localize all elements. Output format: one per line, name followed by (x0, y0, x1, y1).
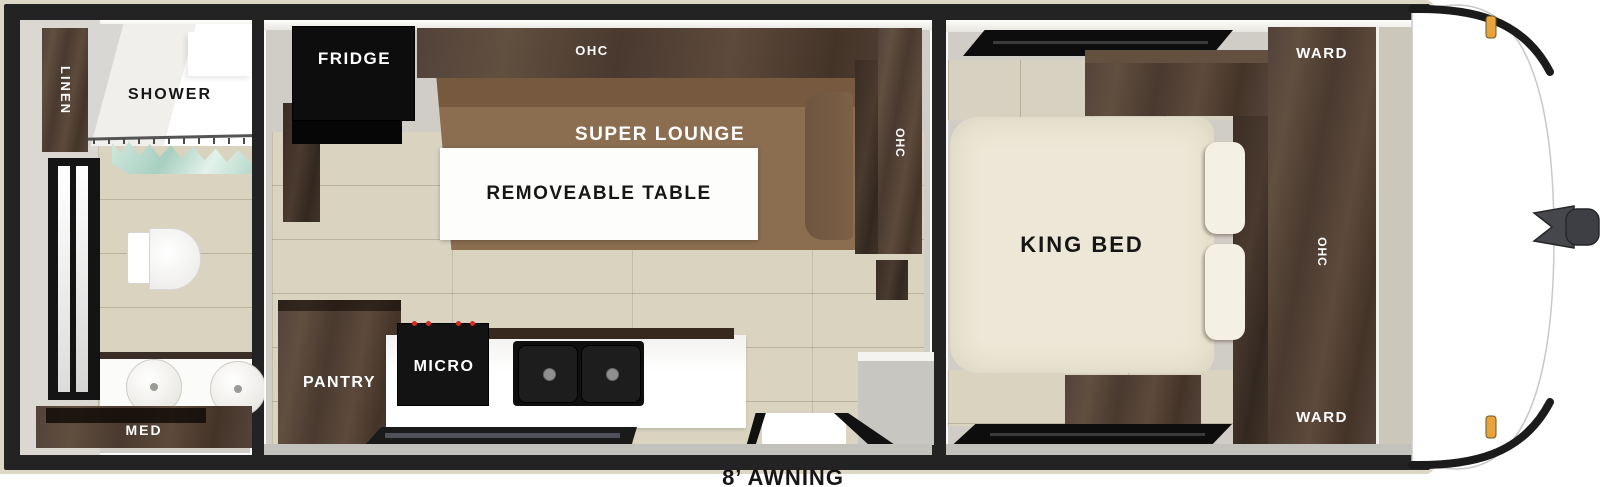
shower-stall: SHOWER (88, 24, 252, 146)
section-kitchen-living: FRIDGE OHC SUPER LOUNGE OHC REMOVEABLE T… (264, 20, 932, 455)
fridge: FRIDGE (292, 26, 415, 121)
ward-front-label: WARD (1268, 45, 1376, 62)
shower-bench (188, 32, 252, 76)
floor-mat-stripe (385, 433, 620, 438)
sink-drain (606, 368, 619, 381)
nightstand-top-face (1085, 50, 1269, 63)
window-frame-line (990, 433, 1205, 436)
counter-back-edge (488, 328, 734, 339)
pillow (1205, 244, 1245, 340)
cap-body (1412, 5, 1554, 469)
shower-label: SHOWER (110, 86, 230, 104)
king-bed-label: KING BED (1020, 232, 1144, 258)
linen-cabinet: LINEN (42, 28, 88, 152)
pantry-top (278, 300, 401, 311)
ohc-top-cabinet: OHC (417, 28, 922, 78)
marker-light-icon (1486, 16, 1496, 38)
micro-label: MICRO (398, 358, 490, 376)
entry-wall-top (858, 352, 934, 361)
section-bedroom: KING BED WARD OHC WARD (946, 20, 1412, 455)
marker-light-icon (1486, 416, 1496, 438)
burner-knob (412, 321, 417, 326)
bedroom-window-bottom (950, 424, 1232, 446)
sink-drain (234, 385, 242, 393)
micro-range: MICRO (397, 323, 489, 406)
entry-door-opening (762, 413, 846, 447)
burner-knob (426, 321, 431, 326)
front-cap (1408, 0, 1600, 487)
corner-cabinet (876, 260, 908, 300)
vanity-backsplash (100, 352, 252, 359)
ohc-side-label: OHC (878, 123, 922, 163)
sink-basin (518, 345, 578, 403)
window-pane (76, 166, 88, 392)
sink-basin (581, 345, 641, 403)
removeable-table: REMOVEABLE TABLE (440, 148, 758, 240)
nightstand-bottom (1065, 375, 1201, 429)
burner-knob (470, 321, 475, 326)
sink-drain (543, 368, 556, 381)
shower-curtain-rings (80, 138, 252, 144)
pillow (1205, 142, 1245, 234)
lounge-armrest (805, 92, 853, 240)
pantry-cabinet: PANTRY (278, 300, 401, 447)
bathroom-window (48, 158, 100, 400)
ohc-side-cabinet: OHC (878, 28, 922, 254)
kitchen-floor-mat (365, 427, 637, 445)
ohc-top-label: OHC (552, 43, 632, 58)
linen-label: LINEN (41, 83, 90, 98)
med-cabinet: MED (36, 406, 252, 448)
removeable-table-label: REMOVEABLE TABLE (486, 183, 711, 205)
living-bottom-band (264, 444, 932, 455)
ward-rear-label: WARD (1268, 409, 1376, 426)
bedroom-bottom-band (946, 444, 1412, 455)
king-bed: KING BED (950, 117, 1214, 373)
window-pane (58, 166, 70, 392)
fridge-label: FRIDGE (293, 49, 416, 69)
wall-highlight (1376, 27, 1379, 451)
sink-drain (150, 383, 158, 391)
super-lounge-label: SUPER LOUNGE (520, 124, 800, 146)
section-bathroom: SHOWER LINEN MED (20, 20, 252, 455)
kitchen-sink (513, 341, 644, 406)
fridge-base (292, 120, 402, 144)
awning-label: 8’ AWNING (683, 465, 883, 487)
pantry-label: PANTRY (278, 374, 401, 392)
rv-floorplan: SHOWER LINEN MED (0, 0, 1600, 487)
burner-knob (456, 321, 461, 326)
med-label: MED (36, 422, 252, 438)
nightstand-top (1085, 50, 1269, 116)
wardrobe-column: WARD OHC WARD (1268, 27, 1376, 451)
med-cabinet-top (46, 408, 206, 423)
hitch-coupler (1566, 209, 1599, 245)
window-frame-line (993, 41, 1208, 44)
front-interior-wall (1376, 27, 1412, 451)
bedroom-ohc-label: OHC (1268, 232, 1376, 272)
